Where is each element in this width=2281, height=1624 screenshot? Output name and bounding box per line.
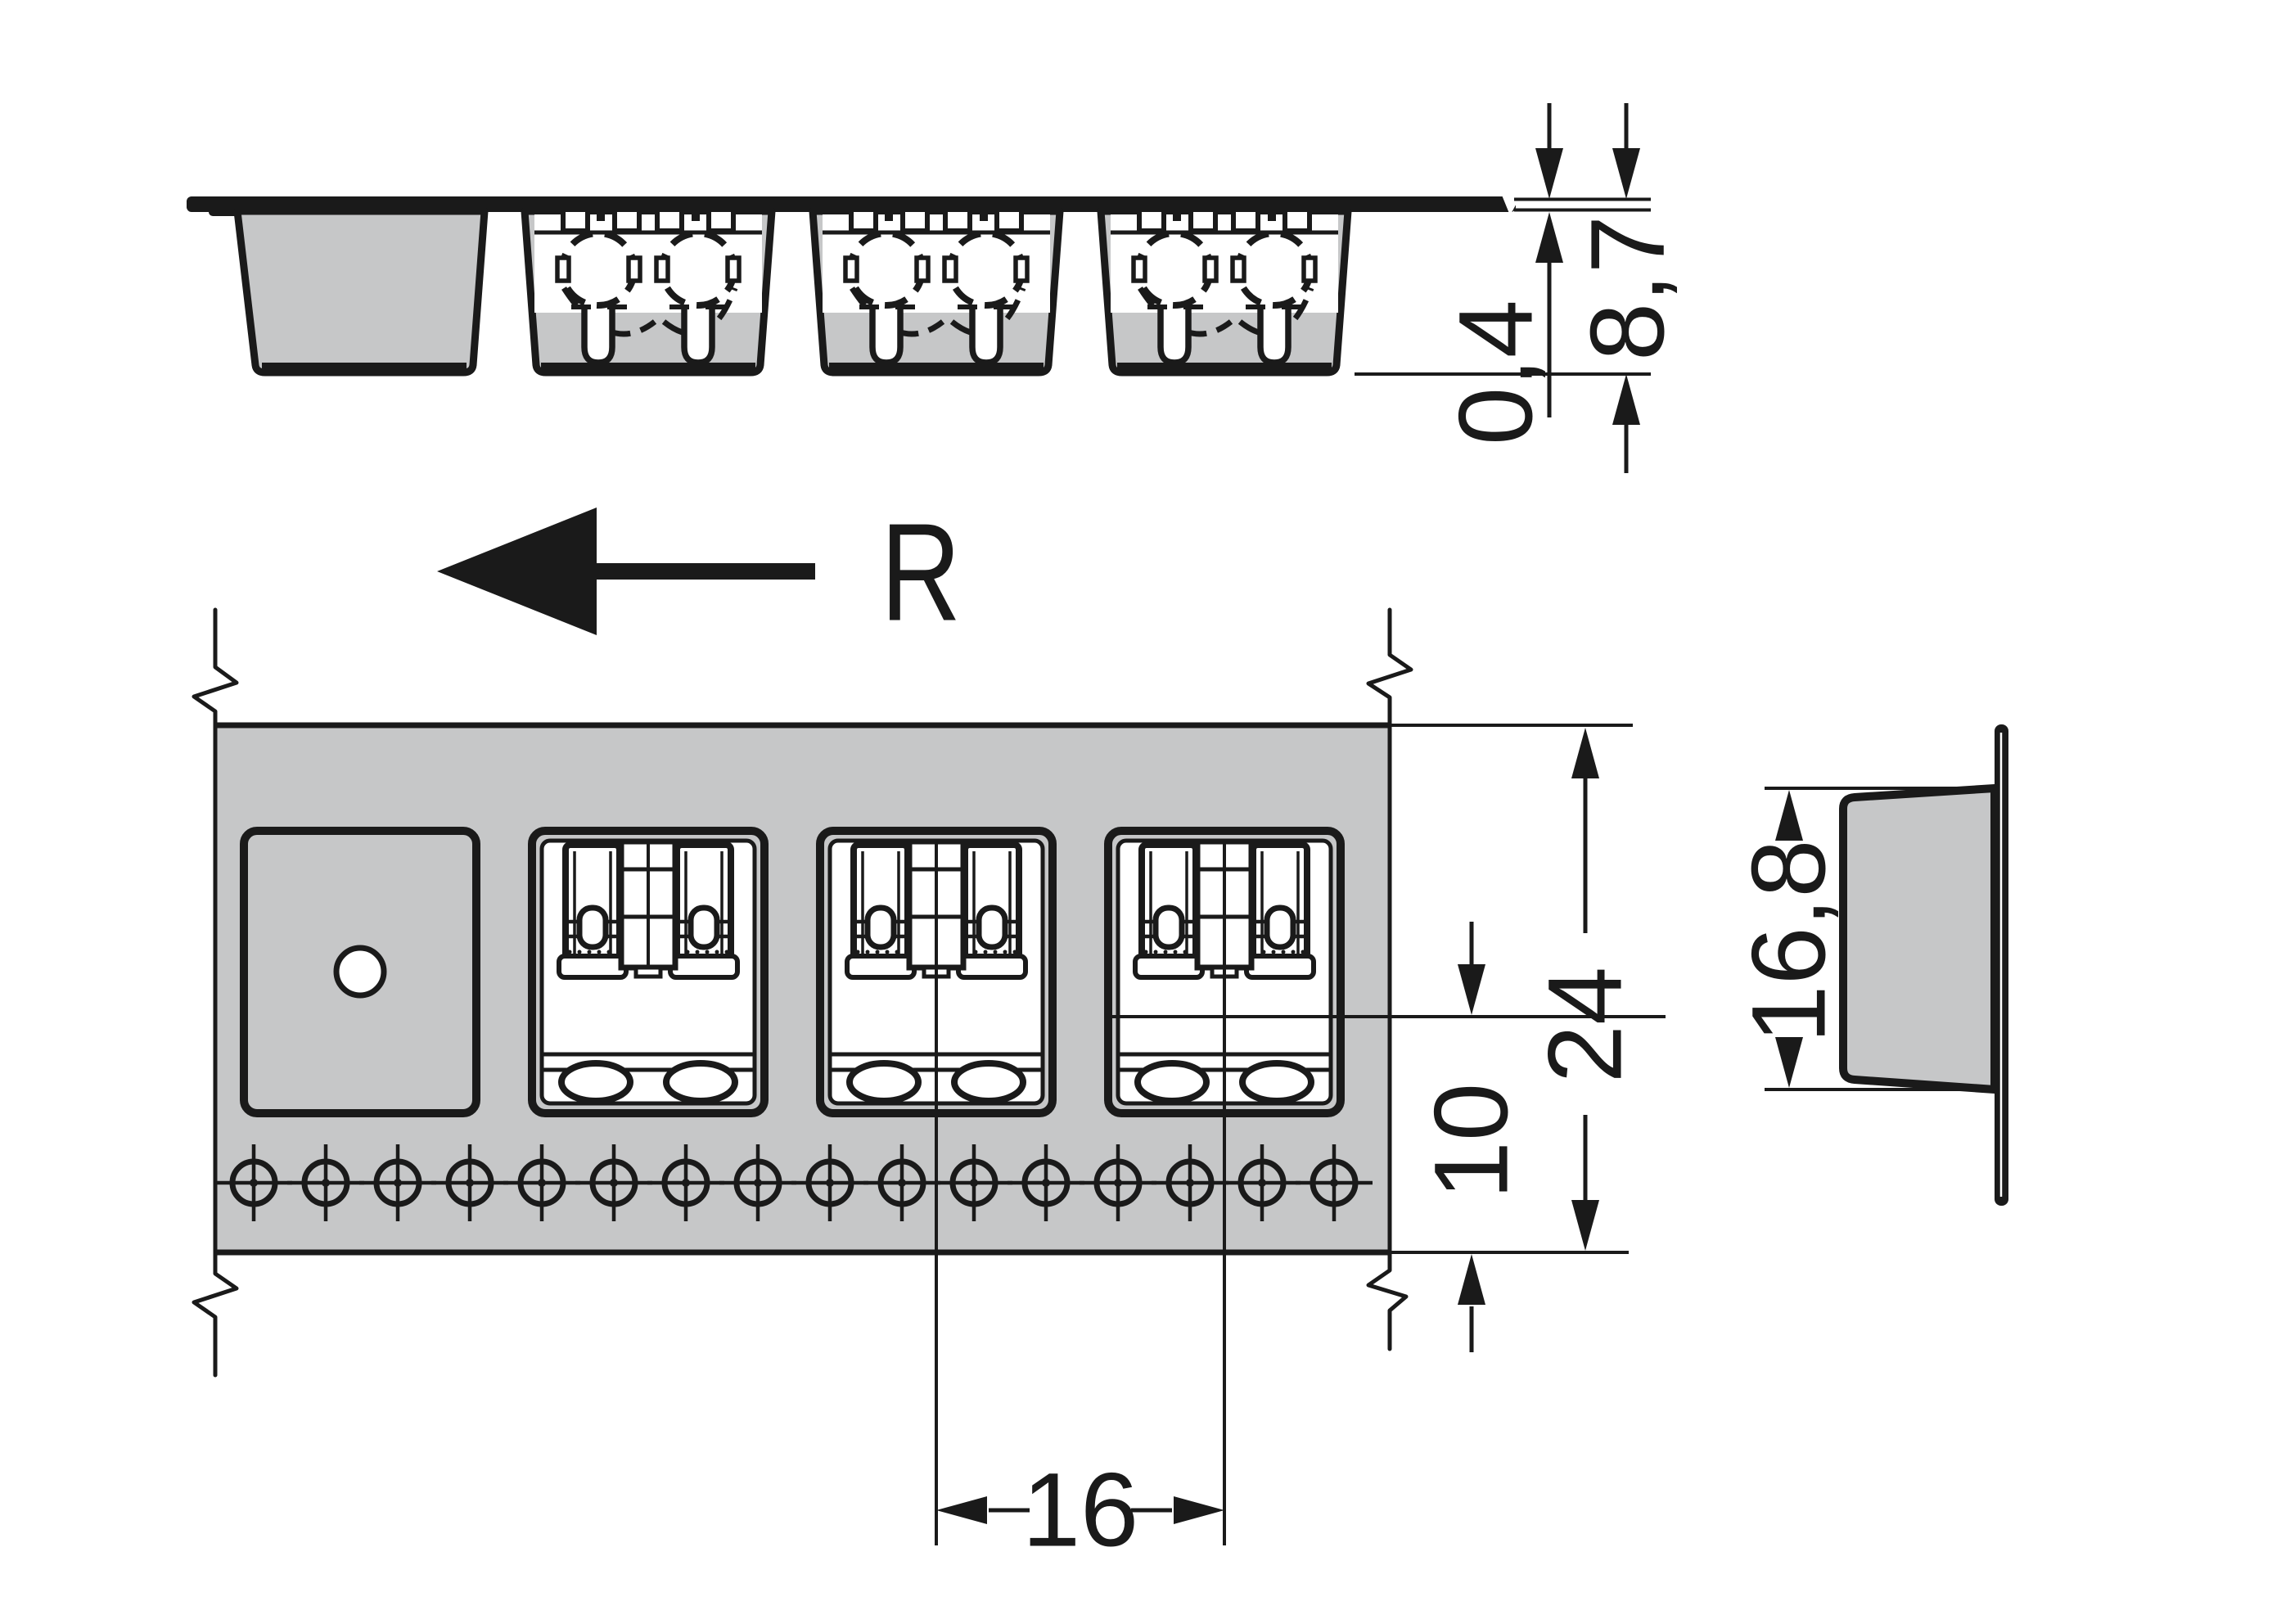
pocket-empty-side (237, 211, 485, 372)
break-line-bottom-right (1368, 1251, 1406, 1349)
pocket-profile (1843, 788, 1995, 1089)
pocket-depth-label: 8,7 (1570, 215, 1687, 361)
break-line-top-left (194, 610, 237, 727)
tape-plan-view: 24 10 16 (194, 610, 1666, 1569)
pocket-profile-view: 16,8 (1731, 724, 2009, 1206)
pocket-pitch-label: 16 (1022, 1452, 1138, 1569)
pocket-index-hole (336, 948, 384, 995)
direction-arrow-shaft (597, 563, 815, 580)
center-to-edge-label: 10 (1413, 1083, 1530, 1199)
direction-arrow-icon (437, 508, 597, 635)
break-line-bottom-left (194, 1251, 237, 1375)
pocket-with-terminal-block-plan (532, 831, 764, 1113)
unreeling-direction: R (437, 494, 961, 650)
pocket-height-label: 16,8 (1731, 839, 1848, 1043)
tape-and-reel-drawing: 0,4 8,7 R (0, 0, 2281, 1624)
tape-thickness-label: 0,4 (1438, 300, 1555, 445)
pocket-with-terminal-block-side (813, 210, 1060, 372)
dimension-tape-thickness: 0,4 (1438, 103, 1564, 445)
pocket-with-terminal-block-side (525, 210, 772, 372)
tape-side-elevation-view: 0,4 8,7 R (187, 103, 1687, 650)
dimension-pocket-pitch: 16 (936, 1452, 1224, 1569)
dimension-pocket-depth: 8,7 (1570, 103, 1687, 473)
pocket-with-terminal-block-side (1101, 210, 1348, 372)
direction-label: R (881, 494, 961, 650)
break-line-top-right (1368, 610, 1411, 727)
pocket-empty-plan (244, 831, 476, 1113)
technical-drawing-sheet: 0,4 8,7 R (0, 0, 2281, 1624)
tape-width-label: 24 (1527, 967, 1644, 1083)
dimension-center-to-edge: 10 (1413, 922, 1530, 1352)
